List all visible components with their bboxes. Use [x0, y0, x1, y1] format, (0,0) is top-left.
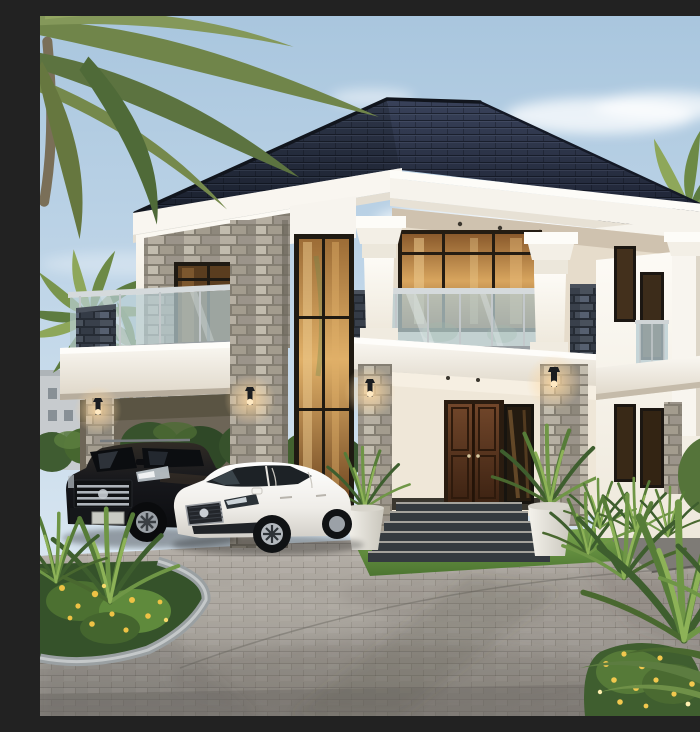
wall-sconce — [224, 374, 276, 426]
front-door — [444, 400, 504, 506]
double-height-window — [290, 196, 356, 512]
rendered-photo: Luxury two-storey tropical villa at dusk… — [40, 16, 700, 716]
juliet-balcony — [635, 320, 669, 366]
villa-exterior-render — [40, 16, 700, 716]
wall-sconce — [344, 366, 396, 418]
stone-cap-right — [570, 286, 598, 354]
wall-sconce — [74, 386, 122, 434]
wall-sconce — [526, 354, 582, 410]
right-wing-windows-lower — [614, 402, 682, 494]
entry-steps — [368, 502, 550, 562]
